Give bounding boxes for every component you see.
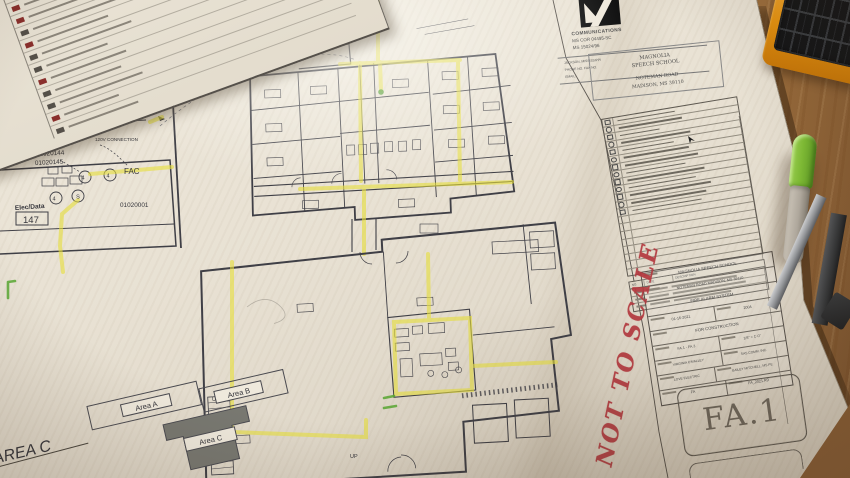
info-job-number-value: 2004 — [743, 306, 752, 312]
highlight-lower — [232, 254, 556, 437]
info-sheet-range-value: FA.1 - FA.3 — [677, 345, 695, 352]
key-plan: Area A Area B Area C AREA C — [0, 362, 300, 478]
info-scale-value: 1/8" = 1'-0" — [743, 335, 761, 342]
organizer-compartments — [773, 0, 850, 69]
room-number-147: 147 — [23, 215, 39, 226]
detector-4: 4 — [81, 176, 84, 182]
info-date-value: 01-16-2021 — [672, 315, 691, 322]
strobe-s: S — [76, 195, 80, 201]
photo-of-blueprint: Corridor 09 120V CONNECTION 01020144 010… — [0, 0, 850, 478]
info-engineer-value: BAILEY MITCHELL, MS PE — [732, 363, 773, 373]
info-contractor-value: LOVE ELECTRIC — [674, 375, 700, 383]
info-firm-value: SAS COMM. INC. — [741, 349, 768, 357]
company-logo — [578, 0, 621, 28]
area-c-title: AREA C — [0, 438, 53, 468]
fac-label: FAC — [124, 167, 140, 176]
green-mark-upper — [378, 89, 384, 95]
device-code-2: 01020145 — [35, 158, 64, 167]
voltage-note: 120V CONNECTION — [95, 137, 138, 142]
sheet-number: FA.1 — [701, 392, 784, 439]
lower-building — [194, 222, 578, 478]
device-code-3: 01020001 — [120, 202, 149, 209]
info-designer-value: VIRGINIA O'MALLEY — [673, 359, 705, 368]
info-status-value: FOR CONSTRUCTION — [695, 323, 739, 335]
detector-4: 4 — [106, 174, 109, 180]
info-system-value: FIRE ALARM SYSTEM — [690, 293, 734, 305]
detector-4: 4 — [52, 197, 55, 203]
up-label: UP — [350, 454, 358, 460]
elec-data-label: Elec/Data — [15, 203, 45, 212]
symbol-legend-table — [601, 96, 764, 277]
marker-green-cap — [788, 133, 818, 189]
